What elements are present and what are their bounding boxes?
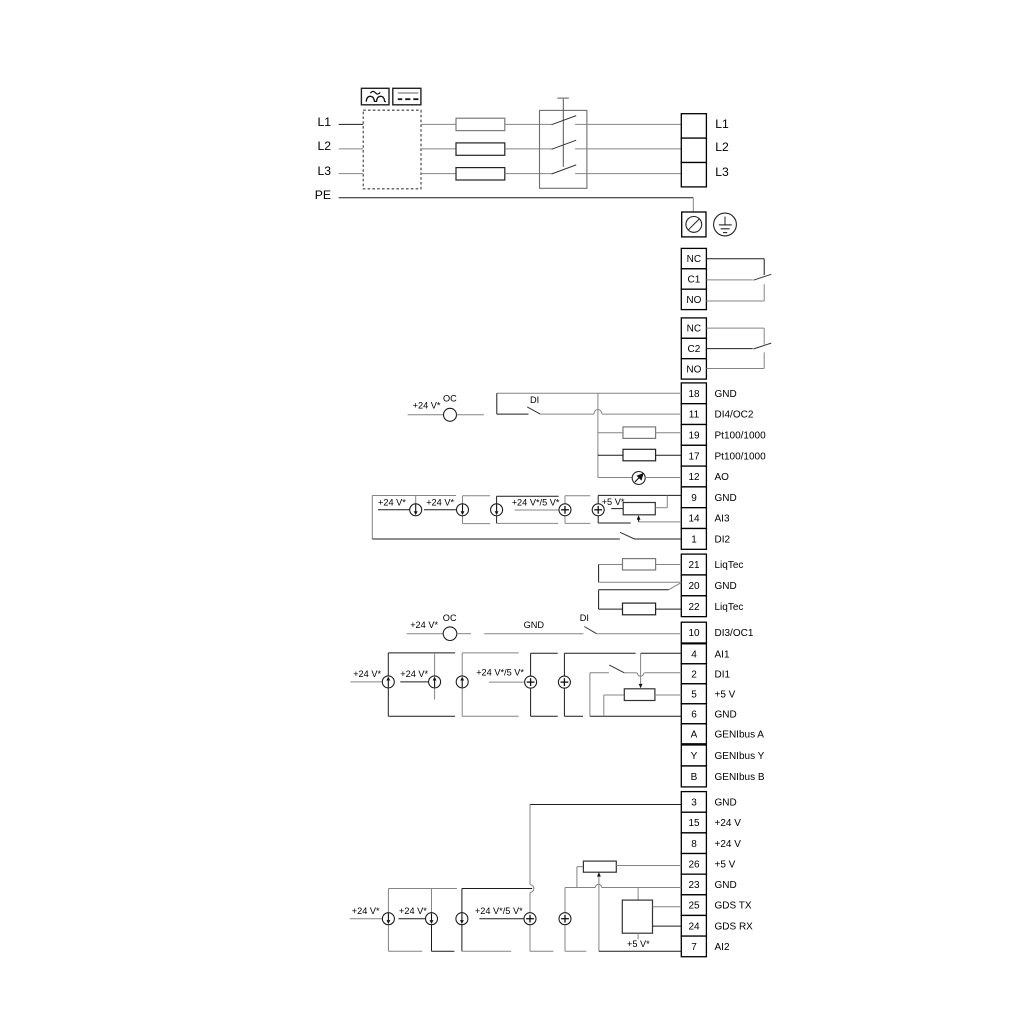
svg-text:+24 V: +24 V — [715, 818, 742, 829]
svg-text:+24 V*: +24 V* — [352, 906, 380, 916]
svg-text:GDS RX: GDS RX — [715, 921, 754, 932]
svg-text:PE: PE — [315, 188, 331, 202]
svg-text:OC: OC — [443, 393, 457, 403]
svg-text:+24 V*: +24 V* — [353, 669, 381, 679]
svg-text:NO: NO — [686, 365, 701, 376]
svg-text:22: 22 — [688, 602, 700, 613]
svg-text:A: A — [691, 729, 698, 740]
svg-text:C1: C1 — [688, 275, 701, 286]
svg-text:+5 V: +5 V — [715, 689, 736, 700]
svg-text:20: 20 — [688, 581, 700, 592]
svg-text:NO: NO — [686, 295, 701, 306]
svg-text:DI: DI — [530, 395, 539, 405]
svg-text:GENIbus B: GENIbus B — [715, 772, 765, 783]
svg-text:+24 V*: +24 V* — [413, 401, 441, 411]
svg-text:12: 12 — [688, 472, 700, 483]
svg-text:10: 10 — [688, 628, 700, 639]
svg-text:23: 23 — [688, 880, 700, 891]
svg-text:GND: GND — [715, 709, 737, 720]
svg-text:+24 V*: +24 V* — [378, 498, 406, 508]
svg-text:B: B — [691, 772, 698, 783]
svg-text:OC: OC — [443, 613, 457, 623]
svg-text:+5 V*: +5 V* — [627, 939, 650, 949]
svg-text:NC: NC — [687, 254, 701, 265]
svg-text:L3: L3 — [317, 164, 331, 178]
svg-text:1: 1 — [691, 535, 697, 546]
svg-text:L1: L1 — [317, 115, 331, 129]
svg-text:6: 6 — [691, 709, 697, 720]
svg-text:+24 V*: +24 V* — [399, 906, 427, 916]
svg-text:7: 7 — [691, 942, 697, 953]
svg-text:GND: GND — [715, 389, 737, 400]
svg-text:21: 21 — [688, 560, 700, 571]
svg-text:+24 V*/5 V*: +24 V*/5 V* — [476, 668, 524, 678]
svg-text:17: 17 — [688, 451, 700, 462]
svg-text:+24 V: +24 V — [715, 839, 742, 850]
svg-text:C2: C2 — [688, 344, 701, 355]
svg-text:2: 2 — [691, 669, 697, 680]
svg-text:GENIbus Y: GENIbus Y — [715, 751, 765, 762]
svg-text:GND: GND — [715, 880, 737, 891]
svg-text:24: 24 — [688, 921, 700, 932]
svg-text:L2: L2 — [715, 140, 729, 154]
svg-text:AI2: AI2 — [715, 942, 730, 953]
svg-text:5: 5 — [691, 689, 697, 700]
svg-text:LiqTec: LiqTec — [715, 602, 744, 613]
svg-text:11: 11 — [689, 410, 700, 421]
svg-text:GDS TX: GDS TX — [715, 901, 752, 912]
svg-text:DI2: DI2 — [715, 535, 731, 546]
svg-text:L2: L2 — [317, 139, 331, 153]
svg-text:L3: L3 — [715, 165, 729, 179]
svg-text:Y: Y — [691, 751, 698, 762]
svg-text:AI1: AI1 — [715, 649, 730, 660]
svg-text:+24 V*/5 V*: +24 V*/5 V* — [512, 498, 560, 508]
svg-text:18: 18 — [688, 389, 700, 400]
svg-text:GND: GND — [715, 493, 737, 504]
svg-text:LiqTec: LiqTec — [715, 560, 744, 571]
svg-text:+24 V*/5 V*: +24 V*/5 V* — [475, 906, 523, 916]
svg-text:Pt100/1000: Pt100/1000 — [715, 431, 767, 442]
svg-text:+24 V*: +24 V* — [410, 620, 438, 630]
svg-text:DI3/OC1: DI3/OC1 — [715, 628, 754, 639]
svg-text:GND: GND — [715, 798, 737, 809]
svg-text:GND: GND — [524, 620, 545, 630]
svg-text:14: 14 — [688, 514, 700, 525]
svg-text:26: 26 — [688, 859, 700, 870]
svg-text:GENIbus A: GENIbus A — [715, 729, 765, 740]
svg-text:+5 V*: +5 V* — [602, 497, 625, 507]
svg-text:Pt100/1000: Pt100/1000 — [715, 451, 767, 462]
svg-text:15: 15 — [688, 818, 700, 829]
svg-text:L1: L1 — [715, 117, 729, 131]
svg-text:9: 9 — [691, 493, 697, 504]
svg-text:DI4/OC2: DI4/OC2 — [715, 410, 754, 421]
svg-text:NC: NC — [687, 324, 701, 335]
svg-text:19: 19 — [688, 431, 700, 442]
svg-text:4: 4 — [691, 649, 697, 660]
svg-text:3: 3 — [691, 798, 697, 809]
svg-text:+5 V: +5 V — [715, 859, 736, 870]
svg-text:+24 V*: +24 V* — [400, 669, 428, 679]
svg-text:DI1: DI1 — [715, 669, 731, 680]
svg-text:AI3: AI3 — [715, 514, 730, 525]
svg-text:8: 8 — [691, 839, 697, 850]
svg-text:AO: AO — [715, 472, 730, 483]
svg-text:+24 V*: +24 V* — [426, 498, 454, 508]
svg-text:DI: DI — [580, 613, 589, 623]
svg-text:25: 25 — [688, 901, 700, 912]
svg-text:GND: GND — [715, 581, 737, 592]
